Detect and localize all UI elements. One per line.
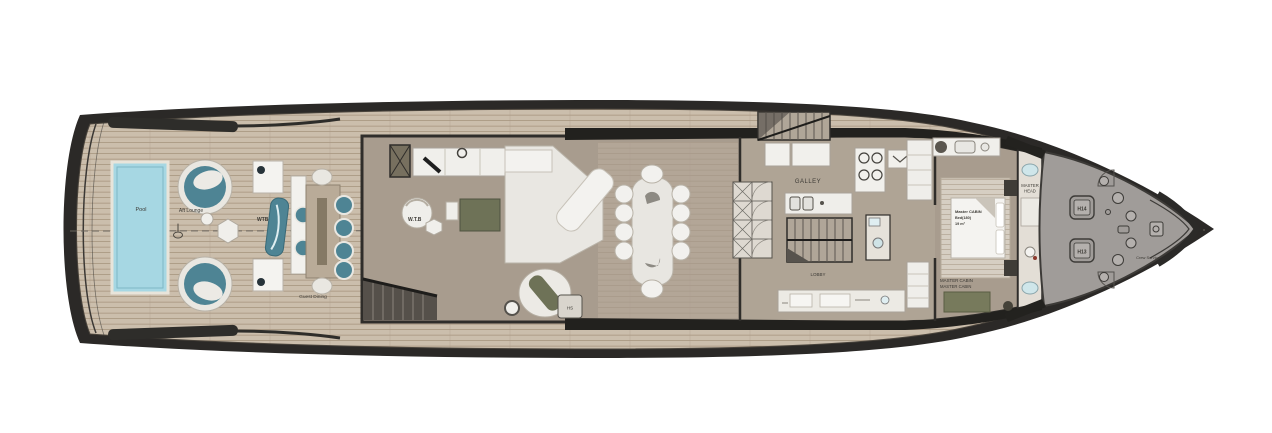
master-cabin-label-1: MASTER CABIN bbox=[940, 278, 973, 283]
coffee-side-table bbox=[446, 202, 458, 220]
coffee-table bbox=[460, 199, 500, 231]
h14-label: H14 bbox=[1077, 207, 1086, 213]
yacht-deck-plan: Pool Aft Lounge WTB bbox=[0, 0, 1272, 433]
day-head bbox=[866, 215, 890, 260]
master-vanity bbox=[933, 138, 1000, 156]
bed-label-1: Master CABIN bbox=[955, 209, 982, 214]
head-sink-top bbox=[1022, 164, 1038, 176]
stairs-down bbox=[787, 218, 852, 262]
head-sink-bottom bbox=[1022, 282, 1038, 294]
pool-label: Pool bbox=[135, 207, 146, 213]
galley-fridge bbox=[765, 143, 790, 166]
h13-label: H13 bbox=[1077, 250, 1086, 256]
small-round-table bbox=[505, 301, 519, 315]
master-head-label-1: MASTER bbox=[1021, 183, 1038, 188]
deck-stool-bottom bbox=[253, 259, 283, 291]
dining-sideboard bbox=[291, 176, 306, 274]
bed-label-3: 19 m² bbox=[955, 222, 966, 226]
hs-label: HS bbox=[567, 306, 573, 311]
head-drain-dot bbox=[1033, 256, 1037, 260]
crew-service-label: Crew Service bbox=[1136, 255, 1161, 260]
deck-plan-drawing: Pool Aft Lounge WTB bbox=[0, 0, 1272, 433]
master-head: MASTER HEAD bbox=[1018, 150, 1042, 308]
master-cabin-label-2: MASTER CABIN bbox=[940, 284, 971, 289]
corridor-lockers bbox=[733, 182, 772, 258]
pantry-counter bbox=[778, 290, 905, 312]
head-wc bbox=[1025, 247, 1035, 257]
foot-bench bbox=[944, 292, 990, 312]
cooktop-counter bbox=[855, 148, 885, 192]
bed-label-2: Bed(180) bbox=[955, 216, 972, 220]
aft-lounge-seat-bottom bbox=[178, 257, 232, 311]
master-stool bbox=[1003, 301, 1013, 311]
hs-box: HS bbox=[558, 295, 582, 318]
master-cabinet-bottom bbox=[907, 262, 929, 308]
wtb-salon-label: W.T.B bbox=[408, 217, 422, 223]
aft-lounge-label: Aft Lounge bbox=[179, 208, 203, 214]
nightstand-top bbox=[1004, 180, 1017, 196]
wtb-aft-label: WTB bbox=[257, 217, 269, 223]
master-head-label-2: HEAD bbox=[1024, 189, 1036, 194]
stairs-up bbox=[758, 112, 830, 140]
shower-tray bbox=[1021, 198, 1040, 226]
galley-cabinet-top bbox=[792, 143, 830, 166]
armchair-hex-table bbox=[426, 219, 442, 235]
lobby-label: LOBBY bbox=[810, 272, 825, 277]
galley-island bbox=[785, 193, 852, 214]
side-table-round bbox=[201, 213, 213, 225]
pool bbox=[112, 162, 168, 293]
master-bed bbox=[951, 198, 1005, 258]
nightstand-bottom bbox=[1004, 260, 1017, 276]
aft-lounge-seat-top bbox=[178, 160, 232, 214]
guest-dining-label: Guest Dining bbox=[299, 294, 327, 300]
deck-stool-top bbox=[253, 161, 283, 193]
sofa-top-cushions bbox=[505, 150, 552, 172]
galley-label: GALLEY bbox=[795, 179, 821, 185]
